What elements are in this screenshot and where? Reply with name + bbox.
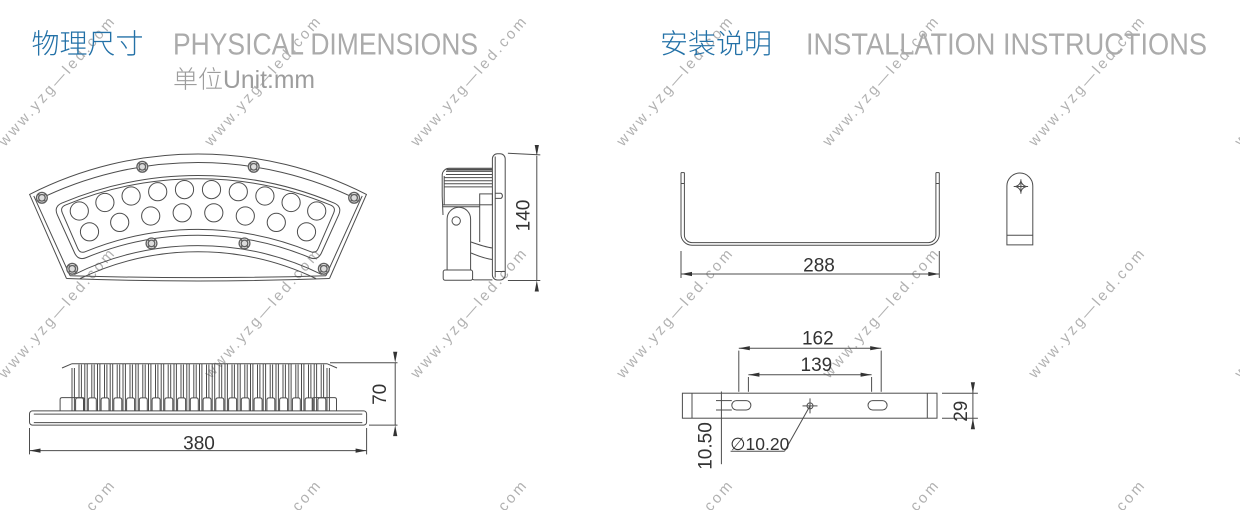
svg-text:70: 70	[370, 384, 391, 405]
svg-text:162: 162	[802, 329, 834, 350]
svg-text:29: 29	[951, 401, 972, 422]
svg-text:139: 139	[801, 355, 833, 376]
svg-text:288: 288	[803, 256, 835, 277]
svg-text:Unit:mm: Unit:mm	[223, 66, 315, 94]
svg-text:380: 380	[183, 433, 215, 454]
svg-text:140: 140	[514, 200, 535, 232]
svg-text:PHYSICAL DIMENSIONS: PHYSICAL DIMENSIONS	[173, 27, 478, 62]
svg-text:∅10.20: ∅10.20	[730, 434, 789, 454]
svg-text:INSTALLATION INSTRUCTIONS: INSTALLATION INSTRUCTIONS	[806, 27, 1207, 62]
svg-text:10.50: 10.50	[696, 422, 717, 470]
